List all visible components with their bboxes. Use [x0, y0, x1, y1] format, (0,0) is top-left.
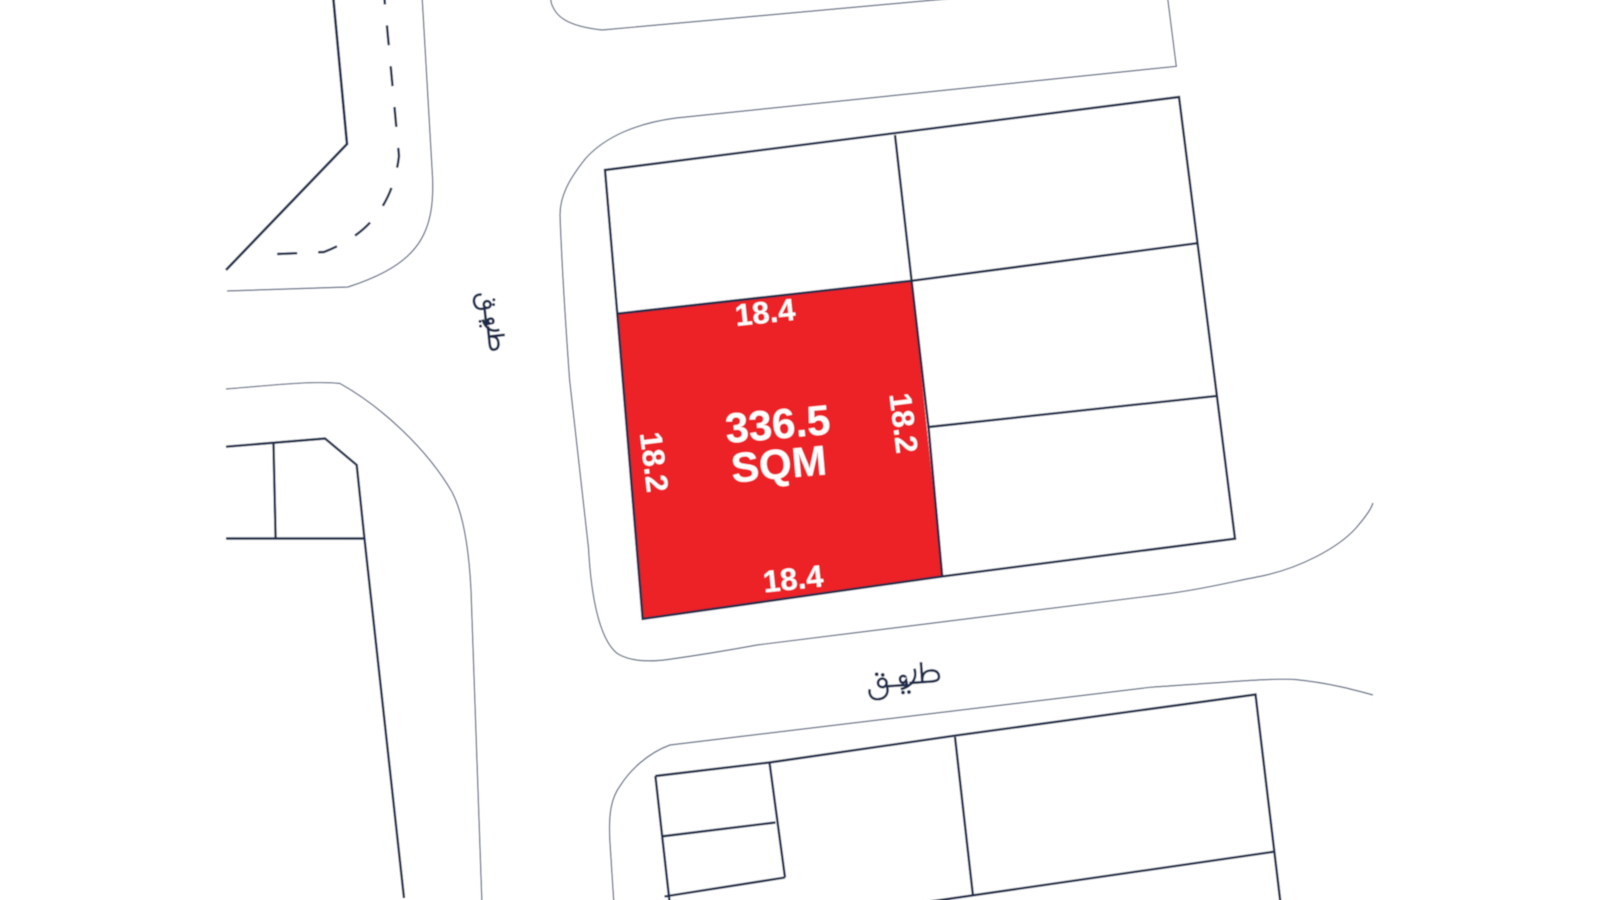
svg-text:18.2: 18.2 — [882, 391, 924, 455]
svg-text:18.2: 18.2 — [633, 430, 675, 494]
svg-text:SQM: SQM — [729, 436, 828, 491]
svg-text:18.4: 18.4 — [733, 292, 797, 333]
svg-text:18.4: 18.4 — [761, 558, 825, 599]
